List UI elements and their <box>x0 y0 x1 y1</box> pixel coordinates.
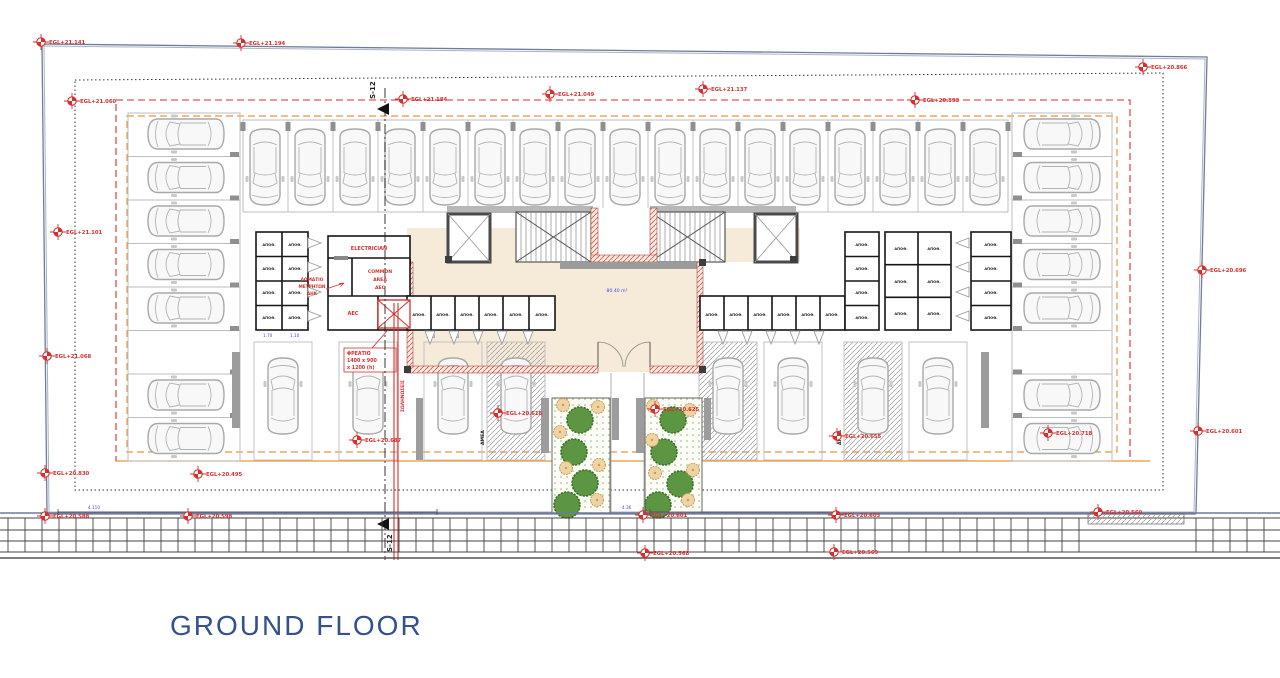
car-icon <box>381 129 420 205</box>
car-icon <box>1024 289 1100 328</box>
elevation-label: EGL+21.184 <box>411 97 448 103</box>
car-icon <box>709 358 748 434</box>
svg-text:ΑΠΟΘ.: ΑΠΟΘ. <box>288 291 301 295</box>
elevation-marker: EGL+21.137 <box>695 81 748 97</box>
elevation-marker: EGL+20.696 <box>1194 262 1247 278</box>
stair-void <box>598 208 650 262</box>
svg-text:ΑΠΟΘ.: ΑΠΟΘ. <box>460 313 473 317</box>
elevation-marker: EGL+20.830 <box>37 465 90 481</box>
elevation-label: EGL+20.569 <box>842 550 879 556</box>
parking-left-column <box>128 113 240 461</box>
svg-text:ΑΠΟΘ.: ΑΠΟΘ. <box>984 291 997 295</box>
elevation-marker: EGL+21.101 <box>50 224 103 240</box>
car-icon <box>696 129 735 205</box>
ground-floor-plan-sheet: 80.40 m² <box>0 0 1280 678</box>
car-icon <box>291 129 330 205</box>
car-icon <box>1024 376 1100 415</box>
elevation-label: EGL+20.588 <box>53 514 90 520</box>
car-icon <box>516 129 555 205</box>
section-label-top: S-12 <box>369 81 377 99</box>
shaft-label-3: x 1200 (h) <box>347 365 375 371</box>
elevation-label: EGL+20.830 <box>53 471 90 477</box>
aec-room-label: AEC <box>348 311 359 317</box>
car-icon <box>831 129 870 205</box>
elevation-label: EGL+20.598 <box>196 514 233 520</box>
disabled-parking-label: ΑΜΕΑ <box>480 430 486 445</box>
meter-room-label-2: ΜΕΤΡΗΤΩΝ <box>298 284 325 290</box>
svg-text:ΑΠΟΘ.: ΑΠΟΘ. <box>262 243 275 247</box>
elevation-label: EGL+20.603 <box>844 513 881 519</box>
meter-room-label-1: ΔΩΜΑΤΙΟ <box>301 277 324 283</box>
car-icon <box>1024 245 1100 284</box>
elevation-marker: EGL+20.603 <box>828 507 881 523</box>
sidewalk-tiles <box>8 518 1264 552</box>
svg-text:ΑΠΟΘ.: ΑΠΟΘ. <box>927 280 940 284</box>
elevation-label: EGL+20.696 <box>1210 268 1247 274</box>
shaft-label-2: 1400 x 900 <box>347 358 377 364</box>
car-icon <box>921 129 960 205</box>
svg-text:ΑΠΟΘ.: ΑΠΟΘ. <box>927 312 940 316</box>
pipe-note-label: ΣΩΛΗΝΩΣΕΙΣ <box>400 380 406 412</box>
elevation-marker: EGL+20.601 <box>1190 423 1243 439</box>
car-icon <box>606 129 645 205</box>
elevation-label: EGL+20.568 <box>653 551 690 557</box>
elevation-label: EGL+20.718 <box>1056 431 1093 437</box>
svg-text:ΑΠΟΘ.: ΑΠΟΘ. <box>262 291 275 295</box>
car-icon <box>854 358 893 434</box>
svg-text:ΑΠΟΘ.: ΑΠΟΘ. <box>984 267 997 271</box>
wheel-stops <box>1013 152 1022 418</box>
elevation-label: EGL+20.560 <box>1106 510 1143 516</box>
svg-text:ΑΠΟΘ.: ΑΠΟΘ. <box>509 313 522 317</box>
section-label-bottom: S-12 <box>386 534 394 552</box>
car-icon <box>471 129 510 205</box>
elevation-label: EGL+20.687 <box>365 438 402 444</box>
elevation-label: EGL+21.194 <box>249 41 286 47</box>
elevation-label: EGL+21.101 <box>66 230 103 236</box>
elevation-label: EGL+21.141 <box>49 40 86 46</box>
svg-text:ΑΠΟΘ.: ΑΠΟΘ. <box>262 267 275 271</box>
car-icon <box>966 129 1005 205</box>
svg-text:ΑΠΟΘ.: ΑΠΟΘ. <box>855 291 868 295</box>
car-icon <box>1024 202 1100 241</box>
car-icon <box>336 129 375 205</box>
planter-bar <box>232 352 240 428</box>
electrician-room-label: ELECTRICIAN <box>351 246 387 252</box>
car-icon <box>786 129 825 205</box>
section-arrow-icon <box>377 518 389 530</box>
elevation-label: EGL+20.618 <box>506 411 543 417</box>
svg-text:ΑΠΟΘ.: ΑΠΟΘ. <box>436 313 449 317</box>
elevation-label: EGL+20.866 <box>1151 65 1188 71</box>
car-icon <box>1024 158 1100 197</box>
car-icon <box>148 289 224 328</box>
parking-top-row <box>241 120 1011 212</box>
elevation-marker: EGL+20.495 <box>190 466 243 482</box>
car-icon <box>561 129 600 205</box>
elevation-label: EGL+20.655 <box>845 434 882 440</box>
elevation-marker: EGL+21.141 <box>33 34 86 50</box>
elevation-marker: EGL+21.060 <box>64 93 117 109</box>
svg-text:ΑΠΟΘ.: ΑΠΟΘ. <box>777 313 790 317</box>
svg-text:ΑΠΟΘ.: ΑΠΟΘ. <box>288 267 301 271</box>
floor-title: GROUND FLOOR <box>170 610 423 642</box>
car-icon <box>426 129 465 205</box>
svg-text:ΑΠΟΘ.: ΑΠΟΘ. <box>753 313 766 317</box>
car-icon <box>246 129 285 205</box>
svg-text:ΑΠΟΘ.: ΑΠΟΘ. <box>855 267 868 271</box>
dim-label: 1.70 <box>263 333 273 338</box>
elevation-label: EGL+21.049 <box>558 92 595 98</box>
svg-text:ΑΠΟΘ.: ΑΠΟΘ. <box>894 280 907 284</box>
floor-plan-drawing: 80.40 m² <box>0 0 1280 678</box>
elevation-label: EGL+20.601 <box>1206 429 1243 435</box>
car-icon <box>774 358 813 434</box>
car-icon <box>1024 115 1100 154</box>
elevation-marker: EGL+21.068 <box>39 348 92 364</box>
svg-text:ΑΠΟΘ.: ΑΠΟΘ. <box>855 243 868 247</box>
section-arrow-icon <box>377 103 389 115</box>
car-icon <box>1024 419 1100 458</box>
svg-text:ΑΠΟΘ.: ΑΠΟΘ. <box>262 316 275 320</box>
svg-text:ΑΠΟΘ.: ΑΠΟΘ. <box>288 243 301 247</box>
floor-area-label: 80.40 m² <box>607 288 628 294</box>
elevation-marker: EGL+20.866 <box>1135 59 1188 75</box>
elevation-label: EGL+20.625 <box>663 407 700 413</box>
svg-text:ΑΠΟΘ.: ΑΠΟΘ. <box>927 247 940 251</box>
svg-text:ΑΠΟΘ.: ΑΠΟΘ. <box>825 313 838 317</box>
parking-right-column <box>1012 113 1112 461</box>
car-icon <box>148 245 224 284</box>
meter-room-label-3: ΑΗΚ <box>307 291 318 297</box>
svg-text:ΑΠΟΘ.: ΑΠΟΘ. <box>894 312 907 316</box>
dim-label: 4.110 <box>88 505 100 510</box>
svg-text:ΑΠΟΘ.: ΑΠΟΘ. <box>288 316 301 320</box>
car-icon <box>741 129 780 205</box>
svg-text:ΑΠΟΘ.: ΑΠΟΘ. <box>412 313 425 317</box>
car-icon <box>148 115 224 154</box>
svg-text:ΑΠΟΘ.: ΑΠΟΘ. <box>705 313 718 317</box>
elevation-marker: EGL+20.598 <box>180 508 233 524</box>
elevation-label: EGL+21.137 <box>711 87 748 93</box>
common-area-label-1: COMMON <box>368 269 392 275</box>
garden-strips <box>541 398 711 518</box>
planter-bar <box>981 352 989 428</box>
svg-text:ΑΠΟΘ.: ΑΠΟΘ. <box>984 243 997 247</box>
svg-text:ΑΠΟΘ.: ΑΠΟΘ. <box>984 316 997 320</box>
elevation-label: EGL+20.495 <box>206 472 243 478</box>
car-icon <box>148 419 224 458</box>
elevation-marker: EGL+20.893 <box>907 92 960 108</box>
svg-text:ΑΠΟΘ.: ΑΠΟΘ. <box>729 313 742 317</box>
svg-text:ΑΠΟΘ.: ΑΠΟΘ. <box>855 316 868 320</box>
shaft-label-1: ΦΡΕΑΤΙΟ <box>347 351 371 357</box>
elevation-label: EGL+20.601 <box>651 513 688 519</box>
svg-text:ΑΠΟΘ.: ΑΠΟΘ. <box>801 313 814 317</box>
dim-label: 1.10 <box>290 333 300 338</box>
common-area-label-3: AEC <box>375 285 386 291</box>
svg-text:ΑΠΟΘ.: ΑΠΟΘ. <box>535 313 548 317</box>
car-icon <box>148 376 224 415</box>
svg-text:ΑΠΟΘ.: ΑΠΟΘ. <box>484 313 497 317</box>
car-icon <box>651 129 690 205</box>
elevation-marker: EGL+21.184 <box>395 91 448 107</box>
car-icon <box>919 358 958 434</box>
elevation-label: EGL+21.068 <box>55 354 92 360</box>
car-icon <box>264 358 303 434</box>
car-icon <box>148 158 224 197</box>
elevation-label: EGL+20.893 <box>923 98 960 104</box>
svg-text:ΑΠΟΘ.: ΑΠΟΘ. <box>894 247 907 251</box>
car-icon <box>148 202 224 241</box>
elevation-label: EGL+21.060 <box>80 99 117 105</box>
elevation-marker: EGL+20.588 <box>37 508 90 524</box>
dim-label: 4.36 <box>622 505 632 510</box>
planter-bar <box>416 398 423 460</box>
car-icon <box>876 129 915 205</box>
